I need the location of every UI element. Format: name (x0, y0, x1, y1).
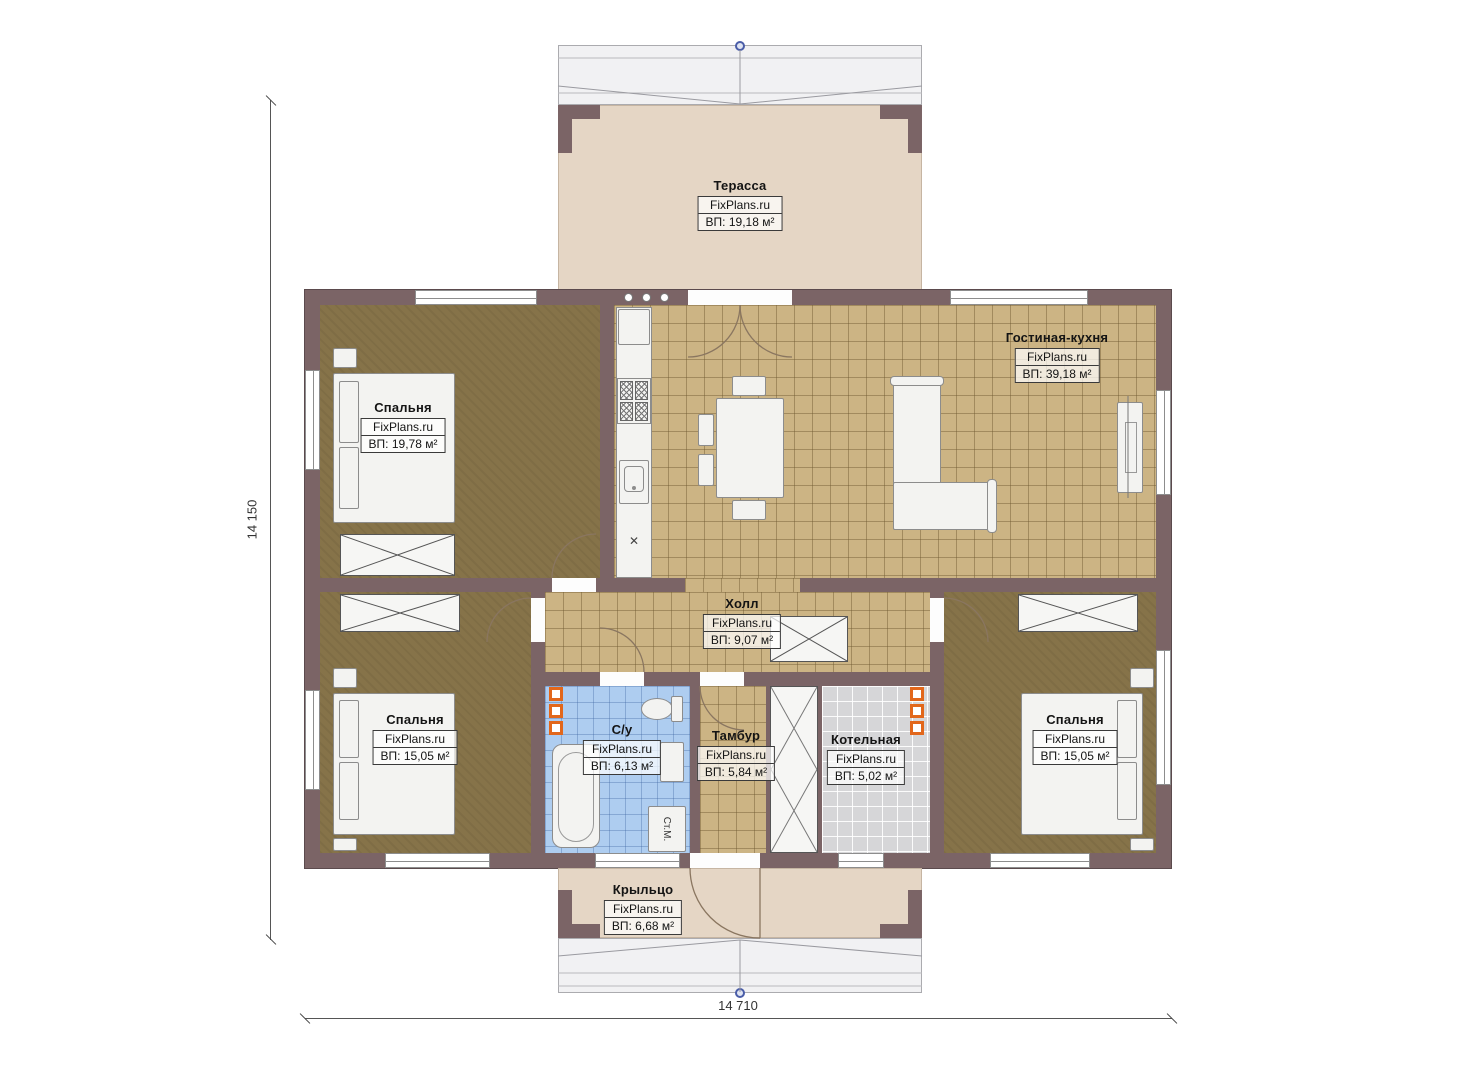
chair (698, 414, 714, 446)
watermark: FixPlans.ru (374, 731, 457, 748)
bedroom2-bottom-window (385, 853, 490, 868)
vent-circle (642, 293, 651, 302)
porch-wall-stub (558, 890, 572, 938)
room-label-boiler: Котельная FixPlans.ru ВП: 5,02 м² (827, 732, 905, 785)
room-label-terrace: Терасса FixPlans.ru ВП: 19,18 м² (698, 178, 783, 231)
terrace-wall-stub (558, 105, 572, 153)
room-name: Котельная (827, 732, 905, 747)
porch-roof-overhang (558, 938, 922, 993)
built-in-closet (770, 686, 818, 853)
room-label-bedroom1: Спальня FixPlans.ru ВП: 19,78 м² (361, 400, 446, 453)
watermark: FixPlans.ru (699, 197, 782, 214)
room-name: Спальня (373, 712, 458, 727)
watermark: FixPlans.ru (698, 747, 774, 764)
wardrobe (340, 534, 455, 576)
washing-machine-label: Ст.М. (645, 811, 689, 847)
dimension-tick (266, 95, 277, 106)
bedroom3-bottom-window (990, 853, 1090, 868)
room-label-bedroom3: Спальня FixPlans.ru ВП: 15,05 м² (1033, 712, 1118, 765)
room-area: ВП: 19,18 м² (699, 214, 782, 230)
burner (635, 381, 648, 400)
room-area: ВП: 5,02 м² (828, 768, 904, 784)
room-area: ВП: 39,18 м² (1016, 366, 1099, 382)
room-area: ВП: 19,78 м² (362, 436, 445, 452)
watermark: FixPlans.ru (362, 419, 445, 436)
chair (732, 500, 766, 520)
kitchen-symbol-x: ✕ (616, 534, 652, 548)
radiator-segment (549, 704, 563, 718)
burner (635, 402, 648, 421)
watermark: FixPlans.ru (584, 741, 660, 758)
axis-marker-bottom (735, 988, 745, 998)
room-area: ВП: 5,84 м² (698, 764, 774, 780)
axis-marker-top (735, 41, 745, 51)
room-area: ВП: 6,13 м² (584, 758, 660, 774)
bedroom1-top-window (415, 290, 537, 305)
bathroom-sink (660, 742, 684, 782)
pillow (339, 381, 359, 443)
room-name: С/у (583, 722, 661, 737)
sofa-section-horizontal (893, 482, 991, 530)
room-label-vestibule: Тамбур FixPlans.ru ВП: 5,84 м² (697, 728, 775, 781)
room-label-porch: Крыльцо FixPlans.ru ВП: 6,68 м² (604, 882, 682, 935)
pillow (1117, 700, 1137, 758)
bedroom3-right-window (1156, 650, 1171, 785)
vent-circle (660, 293, 669, 302)
nightstand (1130, 668, 1154, 688)
sofa-armrest (890, 376, 944, 386)
room-label-living: Гостиная-кухня FixPlans.ru ВП: 39,18 м² (1006, 330, 1108, 383)
room-name: Спальня (361, 400, 446, 415)
room-name: Гостиная-кухня (1006, 330, 1108, 345)
vent-circle (624, 293, 633, 302)
nightstand (333, 838, 357, 851)
bedroom1-left-window (305, 370, 320, 470)
pillow (339, 447, 359, 509)
bathroom-bottom-window (595, 853, 680, 868)
watermark: FixPlans.ru (1034, 731, 1117, 748)
watermark: FixPlans.ru (1016, 349, 1099, 366)
room-name: Терасса (698, 178, 783, 193)
room-label-hall: Холл FixPlans.ru ВП: 9,07 м² (703, 596, 781, 649)
room-area: ВП: 15,05 м² (374, 748, 457, 764)
dimension-tick (266, 934, 277, 945)
stove (617, 378, 651, 424)
chair (698, 454, 714, 486)
boiler-bottom-window (838, 853, 884, 868)
bedroom3-door-opening (930, 598, 944, 642)
living-top-window (950, 290, 1088, 305)
bedroom2-left-window (305, 690, 320, 790)
toilet-bowl (641, 698, 673, 720)
room-area: ВП: 15,05 м² (1034, 748, 1117, 764)
room-name: Холл (703, 596, 781, 611)
pillow (339, 700, 359, 758)
horizontal-dimension-line (305, 1018, 1172, 1019)
room-label-bedroom2: Спальня FixPlans.ru ВП: 15,05 м² (373, 712, 458, 765)
hall-living-opening (685, 578, 800, 592)
kitchen-sink-drain (632, 486, 636, 490)
chair (732, 376, 766, 396)
radiator-segment (549, 721, 563, 735)
vestibule-door-opening (700, 672, 744, 686)
bedroom2-door-opening (531, 598, 545, 642)
pillow (339, 762, 359, 820)
watermark: FixPlans.ru (828, 751, 904, 768)
toilet-tank (671, 696, 683, 722)
room-name: Спальня (1033, 712, 1118, 727)
wardrobe (1018, 594, 1138, 632)
vertical-dimension-label: 14 150 (245, 490, 260, 550)
nightstand (333, 348, 357, 368)
radiator-segment (910, 704, 924, 718)
nightstand (333, 668, 357, 688)
washing-machine: Ст.М. (648, 806, 686, 852)
porch-wall-stub (908, 890, 922, 938)
room-label-bathroom: С/у FixPlans.ru ВП: 6,13 м² (583, 722, 661, 775)
hall-wardrobe (770, 616, 848, 662)
tv-screen (1125, 422, 1137, 473)
living-right-window (1156, 390, 1171, 495)
bedroom1-door-opening (552, 578, 596, 592)
floor-plan-canvas: 14 150 14 710 (0, 0, 1474, 1080)
radiator-segment (910, 687, 924, 701)
room-area: ВП: 9,07 м² (704, 632, 780, 648)
burner (620, 381, 633, 400)
vertical-dimension-line (270, 100, 271, 940)
radiator-segment (910, 721, 924, 735)
radiator-segment (549, 687, 563, 701)
terrace-wall-stub (908, 105, 922, 153)
terrace-roof-overhang (558, 45, 922, 105)
room-area: ВП: 6,68 м² (605, 918, 681, 934)
watermark: FixPlans.ru (704, 615, 780, 632)
watermark: FixPlans.ru (605, 901, 681, 918)
burner (620, 402, 633, 421)
terrace-door-opening (688, 290, 792, 305)
horizontal-dimension-label: 14 710 (698, 998, 778, 1013)
room-name: Крыльцо (604, 882, 682, 897)
dining-table (716, 398, 784, 498)
fridge (618, 309, 650, 345)
sofa-armrest (987, 479, 997, 533)
bathroom-door-opening (600, 672, 644, 686)
room-name: Тамбур (697, 728, 775, 743)
wardrobe (340, 594, 460, 632)
pillow (1117, 762, 1137, 820)
entrance-door-opening (690, 853, 760, 868)
nightstand (1130, 838, 1154, 851)
